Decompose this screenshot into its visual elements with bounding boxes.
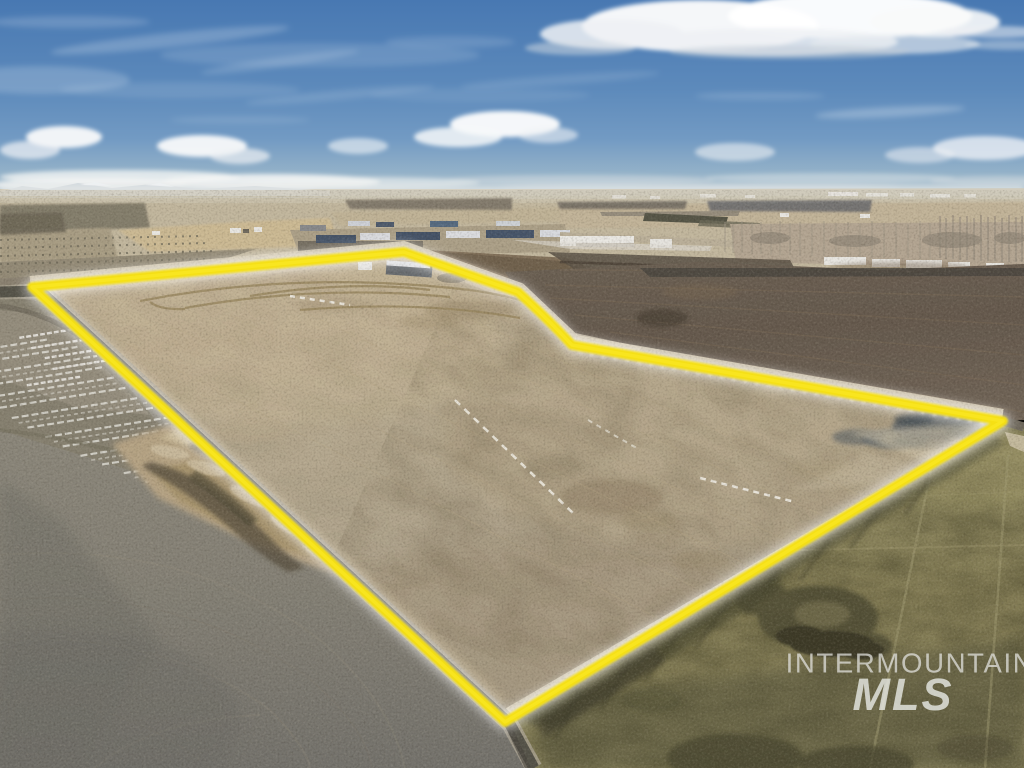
svg-text:MLS: MLS [853, 669, 954, 720]
